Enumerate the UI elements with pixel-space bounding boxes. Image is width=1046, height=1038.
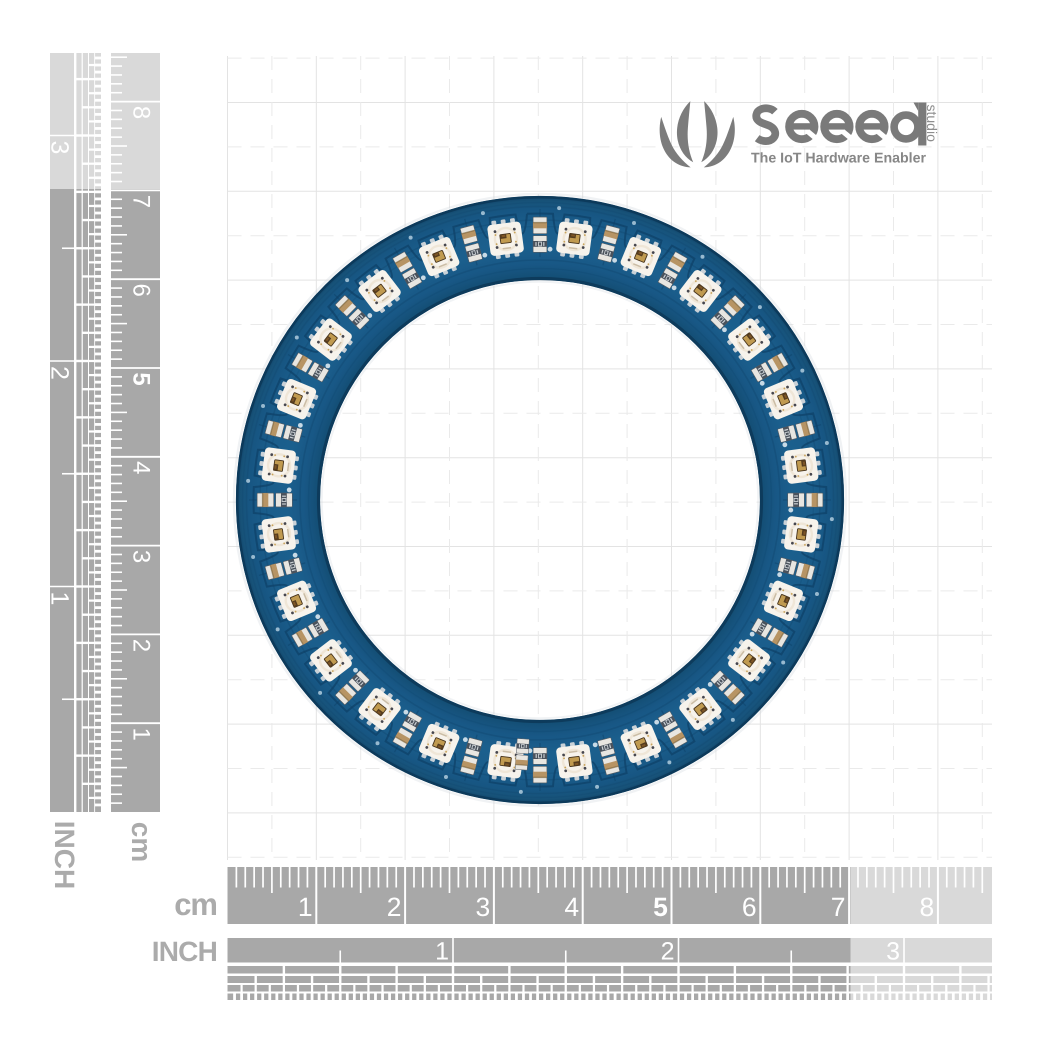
svg-text:3: 3: [46, 141, 74, 155]
svg-text:2: 2: [46, 366, 74, 380]
svg-text:5: 5: [653, 892, 668, 922]
svg-text:2: 2: [387, 892, 402, 922]
svg-text:4: 4: [564, 892, 579, 922]
svg-text:2: 2: [661, 938, 675, 966]
svg-text:INCH: INCH: [152, 936, 217, 967]
svg-text:The IoT Hardware Enabler: The IoT Hardware Enabler: [751, 151, 927, 167]
svg-text:2: 2: [128, 639, 155, 652]
svg-text:INCH: INCH: [49, 821, 80, 889]
svg-text:cm: cm: [126, 822, 157, 862]
svg-text:6: 6: [742, 892, 757, 922]
svg-text:4: 4: [128, 461, 155, 474]
svg-text:8: 8: [920, 892, 935, 922]
svg-text:studio: studio: [924, 105, 940, 143]
svg-text:1: 1: [435, 938, 449, 966]
svg-text:1: 1: [46, 592, 74, 606]
svg-text:3: 3: [886, 938, 900, 966]
svg-text:8: 8: [128, 106, 155, 119]
svg-text:3: 3: [128, 550, 155, 563]
svg-text:7: 7: [128, 195, 155, 208]
svg-text:cm: cm: [174, 887, 217, 922]
svg-text:3: 3: [476, 892, 491, 922]
svg-text:1: 1: [298, 892, 313, 922]
svg-text:6: 6: [128, 284, 155, 297]
svg-text:7: 7: [831, 892, 846, 922]
svg-text:1: 1: [128, 728, 155, 741]
svg-text:5: 5: [128, 372, 155, 385]
